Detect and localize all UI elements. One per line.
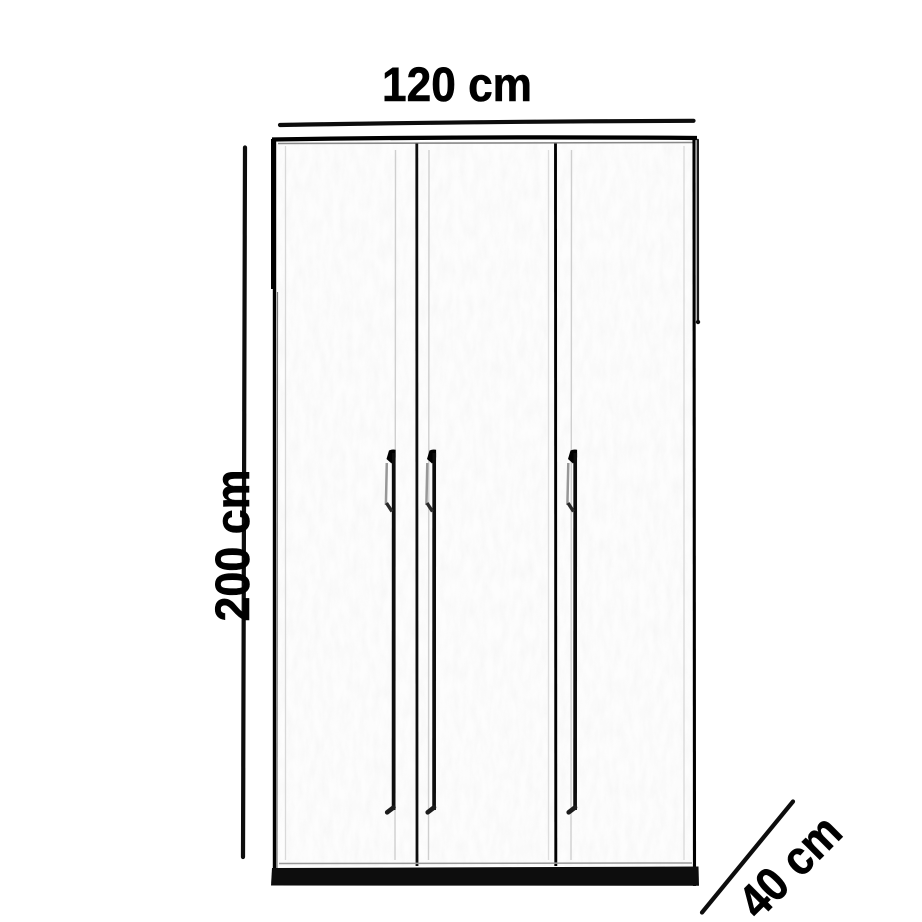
svg-text:120 cm: 120 cm — [382, 59, 532, 112]
svg-text:200 cm: 200 cm — [207, 470, 260, 622]
